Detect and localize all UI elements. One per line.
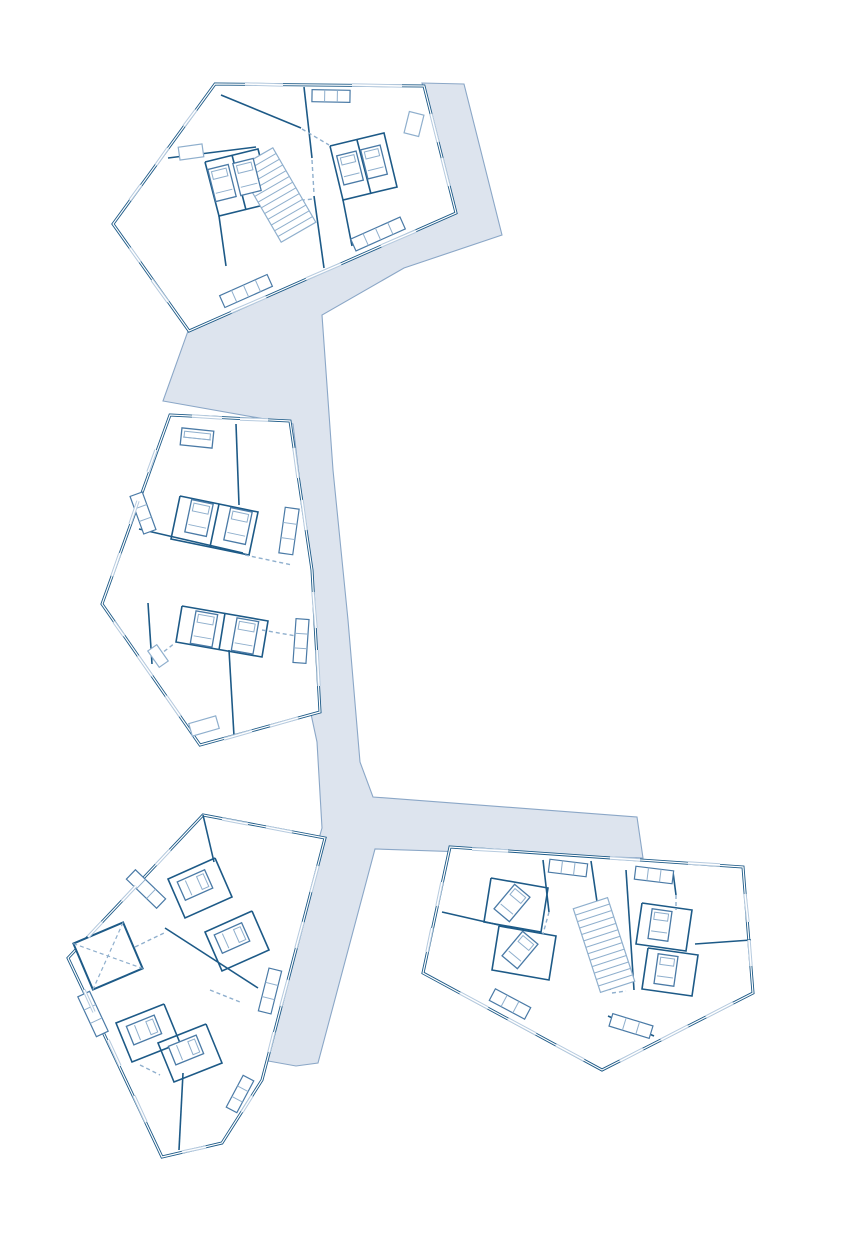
bed (180, 428, 214, 448)
site-plan-svg (0, 0, 841, 1234)
wardrobe-frame (312, 90, 350, 103)
table (178, 144, 204, 160)
bed (654, 954, 678, 986)
wardrobe (293, 619, 309, 664)
window-core (245, 84, 283, 85)
site-plan-canvas (0, 0, 841, 1234)
wardrobe (312, 90, 350, 103)
table (178, 144, 204, 160)
wardrobe-frame (293, 619, 309, 664)
window-core (240, 419, 268, 420)
bed (648, 909, 672, 941)
window-core (352, 85, 402, 86)
